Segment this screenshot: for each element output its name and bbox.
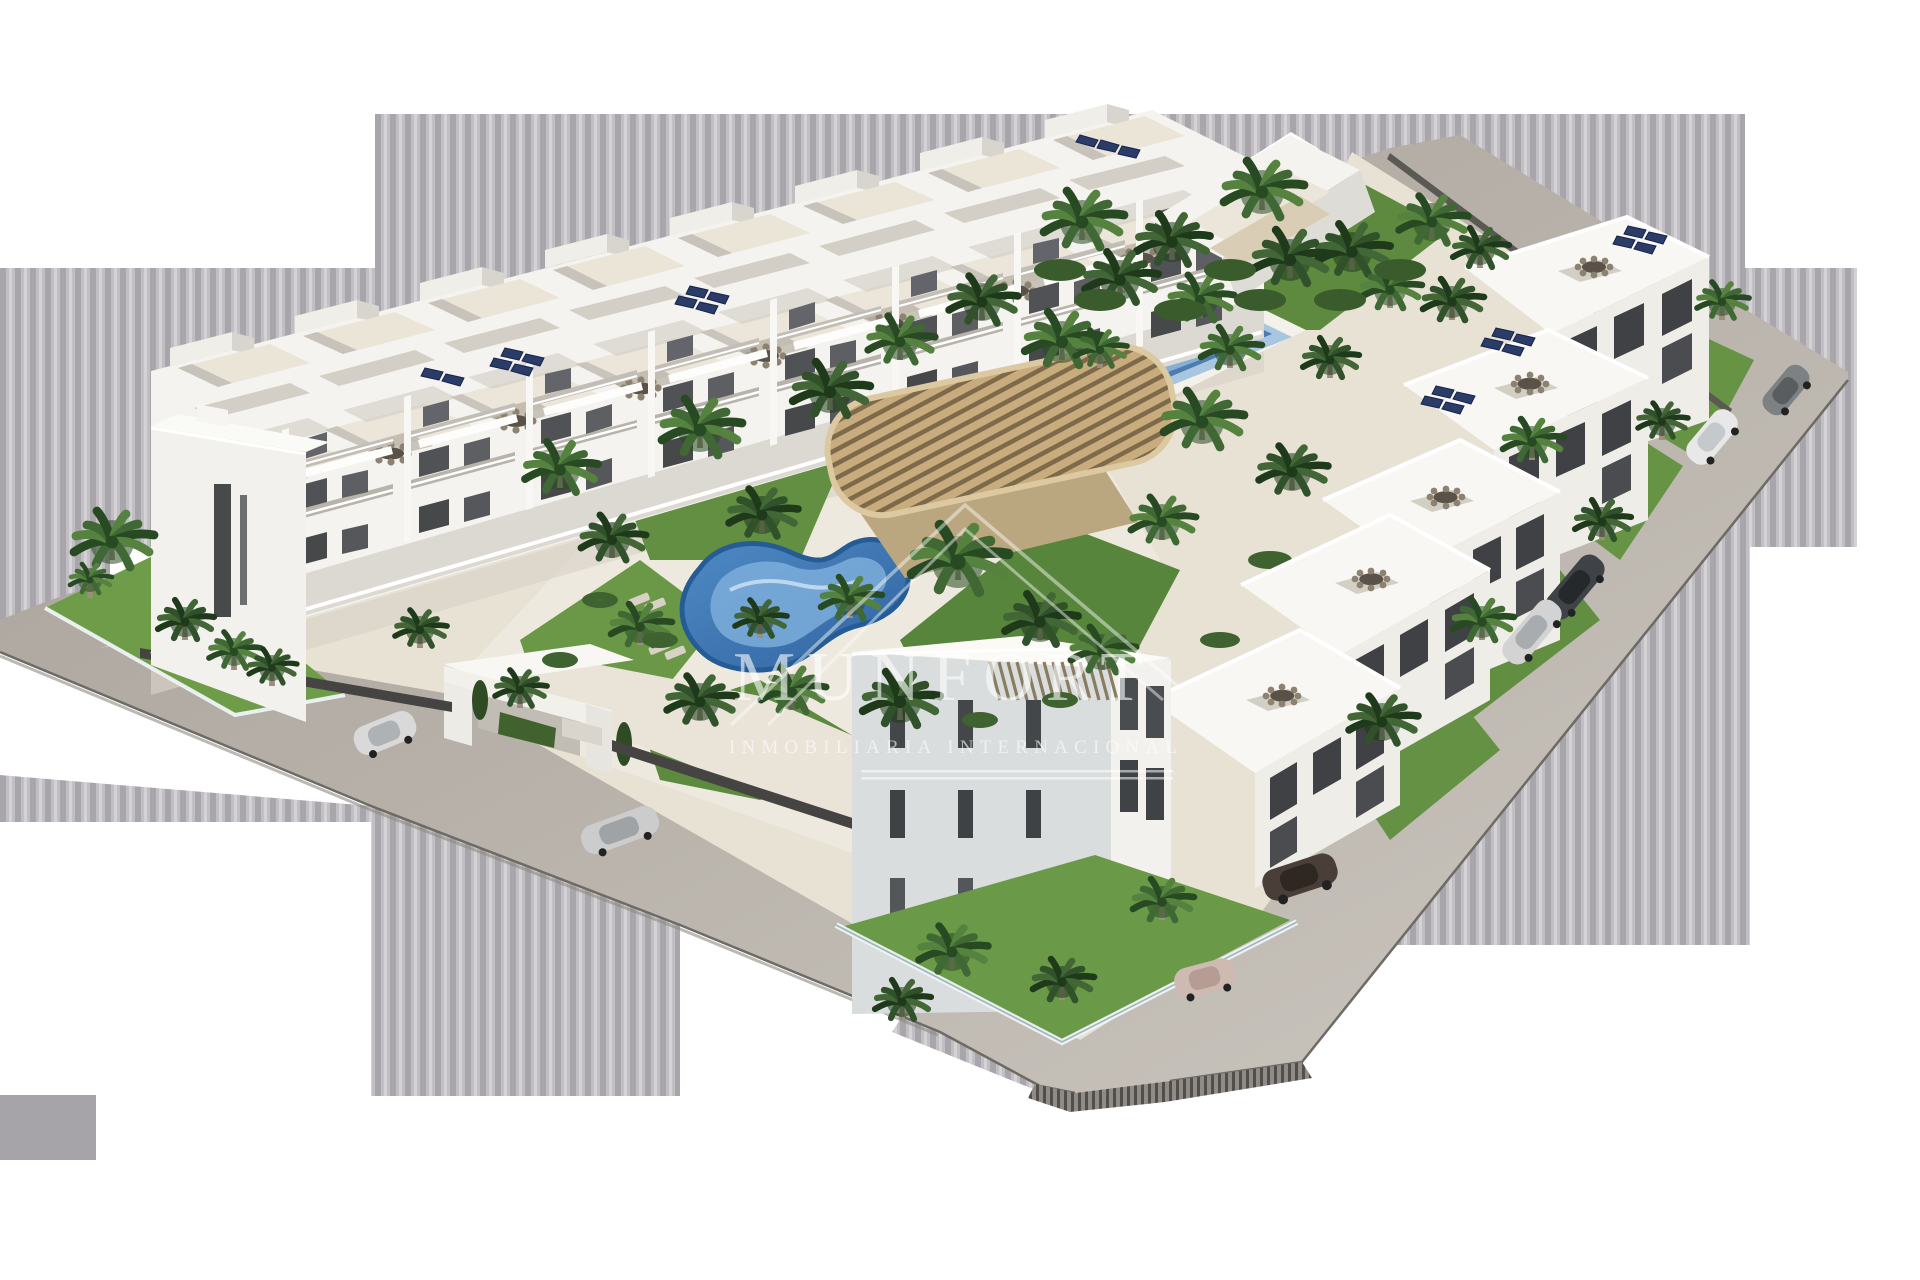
svg-text:INMOBILIARIA INTERNACIONAL: INMOBILIARIA INTERNACIONAL xyxy=(729,737,1183,758)
svg-text:MUNFORT: MUNFORT xyxy=(733,639,1155,716)
